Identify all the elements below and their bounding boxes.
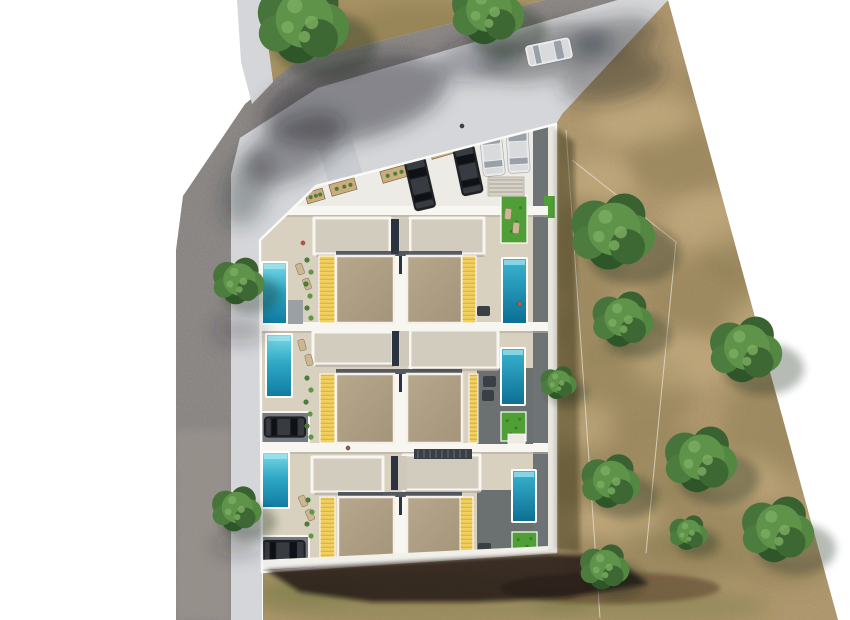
tree-highlight [747,345,758,356]
tree-highlight [600,466,610,476]
tree-highlight [226,281,233,288]
pool-left-steps [264,264,285,269]
planter-shrub [304,423,309,428]
tree-highlight [609,240,620,251]
row-divider-wall [260,443,548,452]
yellow-pergola [469,374,478,443]
tree-highlight [596,554,604,562]
grass-texture-dot [515,426,518,429]
pool-right [512,470,536,522]
garage-car-hood [297,419,304,436]
grass-texture-dot [519,206,522,209]
planter-shrub [303,281,308,286]
roof-terrace-slab [314,218,390,254]
garage-car-trunk [265,542,270,560]
tree-highlight [557,386,562,391]
main-roof [336,374,394,443]
yellow-pergola [320,374,335,443]
yellow-pergola [320,497,335,559]
planter-shrub [308,269,313,274]
tree-highlight [228,496,236,504]
main-roof [407,256,462,323]
tree-highlight [687,537,692,542]
stair-gap-dark [391,456,398,490]
tree-highlight [620,325,628,333]
slab-shadow [316,365,394,368]
road-tree-shadow [214,316,266,344]
tree-highlight [729,349,739,359]
planter-shrub [309,509,314,514]
pool-left-steps [268,336,290,341]
planter-shrub [304,375,309,380]
grass-texture-dot [517,538,520,541]
person-dot [301,241,305,245]
aerial-site-render [0,0,850,620]
tree-highlight [484,19,493,28]
parked-white-car-trunk [510,165,528,171]
tree-highlight [608,487,615,494]
grass-patch [501,196,527,243]
tree-highlight [684,459,694,469]
entry-stairs [414,449,472,459]
grass-texture-dot [506,419,509,422]
sun-lounger [504,208,511,220]
planter-shrub [304,257,309,262]
roof-terrace-slab [312,457,383,492]
white-pad [508,434,525,444]
tree-highlight [612,303,622,313]
tree-highlight [602,572,608,578]
pool-right-steps [514,472,534,477]
garage-car-roof [277,419,290,435]
stair-gap-dark [391,219,399,254]
outdoor-sofa [477,306,490,316]
garage-car-rear-glass [270,542,275,560]
sun-lounger [512,222,519,234]
stair-gap-light [400,331,409,366]
tree-highlight [774,537,783,546]
tree-highlight [615,226,627,238]
tree-highlight [225,509,232,516]
tree-highlight [682,523,688,529]
tree-highlight [238,506,245,513]
garage-car-windshield [290,542,297,560]
tree-highlight [598,210,612,224]
tree-highlight [281,21,293,33]
pool-right [502,258,527,324]
tree-highlight [230,268,239,277]
pool-right-steps [504,260,525,265]
planter-shrub [308,434,313,439]
planter-shrub [307,411,312,416]
party-wall-gap [399,256,402,274]
stair-gap-dark [392,331,399,366]
tree-highlight [608,319,616,327]
tree-highlight [733,331,745,343]
garage-car-windshield [291,419,298,436]
stair-gap-light [398,456,407,490]
person-dot [346,446,350,450]
tree-highlight [702,455,713,466]
site-plan-canvas [0,0,850,620]
planter-shrub [308,315,313,320]
tree-highlight [779,525,790,536]
tree-highlight [765,511,777,523]
pool-left [262,452,289,508]
tree-highlight [688,441,700,453]
parked-white-car-roof [509,142,527,158]
main-roof [338,497,394,559]
tree-highlight [593,231,604,242]
pool-right [501,348,525,405]
stair-gap-light [400,219,409,254]
pool-left [266,334,292,397]
grass-texture-dot [518,418,521,421]
pool-right-steps [503,350,523,355]
main-roof [407,497,462,559]
tree-highlight [550,382,555,387]
planter-shrub [303,399,308,404]
tree-highlight [559,380,564,385]
tree-highlight [606,564,613,571]
planter-shrub [305,497,310,502]
tree-highlight [489,7,500,18]
yellow-pergola [460,497,473,559]
parked-white-car-roof [483,144,501,161]
tree-highlight [236,286,242,292]
main-roof [336,256,394,323]
party-wall-gap [399,374,402,392]
outdoor-sofa [483,376,496,387]
tree-highlight [689,530,695,536]
tree-highlight [624,315,633,324]
person-dot [460,124,464,128]
person-dot [518,302,522,306]
grass-texture-dot [529,537,532,540]
pool-left-steps [264,454,287,459]
garage-car-hood [297,542,304,560]
yellow-pergola [319,256,335,323]
tree-highlight [299,31,311,43]
tree-highlight [679,532,684,537]
outdoor-sofa [482,390,494,401]
garage-car [264,417,306,438]
planter-shrub [307,293,312,298]
garage-car-roof [276,543,289,560]
tree-highlight [305,16,318,29]
tree-highlight [742,357,751,366]
tree-highlight [612,477,621,486]
roof-terrace-slab [410,330,498,368]
planter-shrub [304,521,309,526]
planter-shrub [308,533,313,538]
roof-terrace-slab [313,332,393,364]
garage-car-trunk [266,419,271,436]
yellow-pergola [462,256,476,323]
roof-terrace-slab [410,218,484,254]
main-roof [407,374,462,443]
tree-highlight [471,11,481,21]
roof-terrace-slab [403,455,480,490]
planter-shrub [308,387,313,392]
tree-highlight [552,373,558,379]
tree-highlight [761,529,771,539]
tree-highlight [234,514,240,520]
parked-white-car-rear-glass [510,158,528,165]
tree-highlight [240,278,248,286]
planter-shrub [304,305,309,310]
tree-highlight [593,567,600,574]
tree-highlight [697,467,706,476]
garage-car-rear-glass [272,419,277,436]
party-wall-gap [399,497,402,515]
tree-highlight [597,481,605,489]
